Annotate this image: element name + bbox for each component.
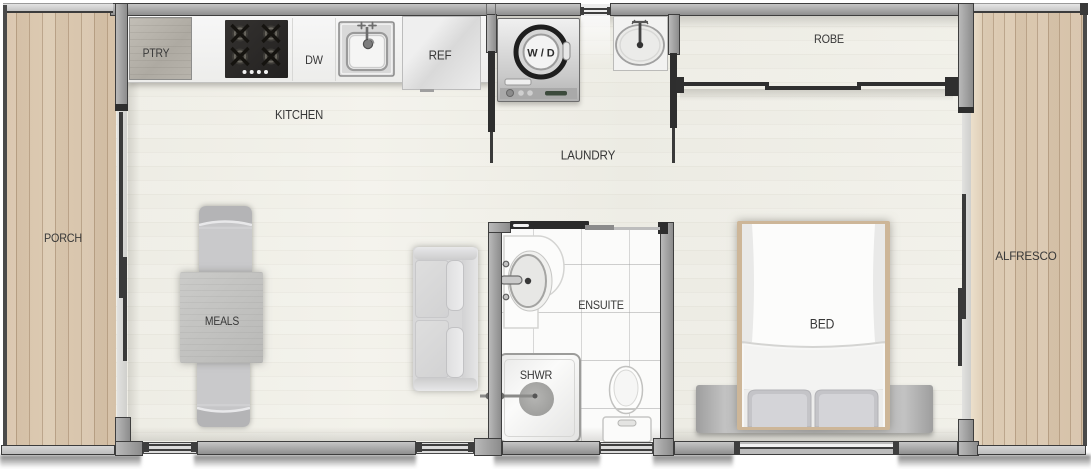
svg-text:W / D: W / D	[527, 48, 555, 60]
